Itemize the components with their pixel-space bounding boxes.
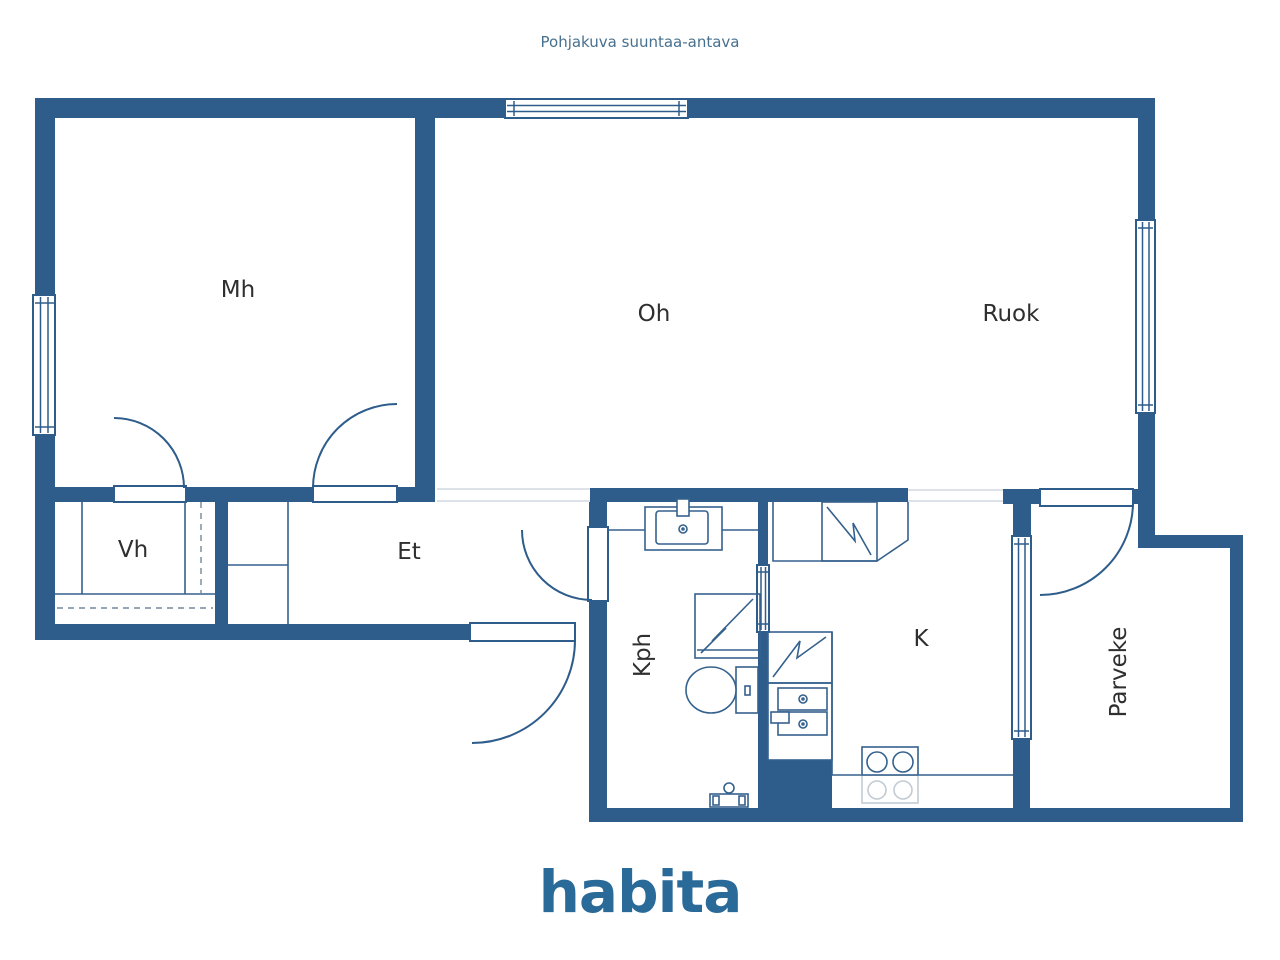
room-label-mh: Mh bbox=[221, 277, 255, 303]
window-k-parveke bbox=[1012, 536, 1031, 739]
walls bbox=[35, 98, 1243, 822]
window-top-oh bbox=[505, 99, 688, 118]
floor-drain-symbol bbox=[710, 783, 748, 807]
shower-symbol bbox=[695, 594, 760, 658]
door-mh-vh bbox=[114, 418, 186, 502]
window-right-ruok bbox=[1136, 220, 1155, 413]
room-label-vh: Vh bbox=[118, 537, 148, 563]
stove-symbol bbox=[862, 747, 918, 803]
window-left-mh bbox=[33, 295, 55, 435]
door-et-kph bbox=[522, 527, 608, 601]
room-label-ruok: Ruok bbox=[983, 301, 1041, 327]
room-label-k: K bbox=[913, 626, 929, 652]
fridge-symbol bbox=[773, 502, 908, 561]
room-label-oh: Oh bbox=[638, 301, 671, 327]
window-kph-k bbox=[757, 565, 769, 632]
door-mh-et bbox=[313, 404, 397, 502]
room-label-kph: Kph bbox=[630, 633, 656, 677]
door-balcony bbox=[1040, 489, 1133, 595]
room-label-parveke: Parveke bbox=[1106, 627, 1132, 718]
kitchen-counter-edge bbox=[832, 632, 1013, 775]
bathroom-sink-symbol bbox=[607, 499, 758, 550]
door-entrance bbox=[470, 623, 575, 743]
room-label-et: Et bbox=[397, 539, 421, 565]
kitchen-sink-symbol bbox=[768, 683, 832, 760]
floor-plan: Mh Oh Ruok Vh Et Kph K Parveke bbox=[0, 0, 1280, 960]
kitchen-cabinet-symbol bbox=[768, 632, 832, 683]
closet-et-symbol bbox=[228, 502, 288, 624]
toilet-symbol bbox=[686, 667, 758, 713]
habita-logo: habita bbox=[0, 858, 1280, 926]
